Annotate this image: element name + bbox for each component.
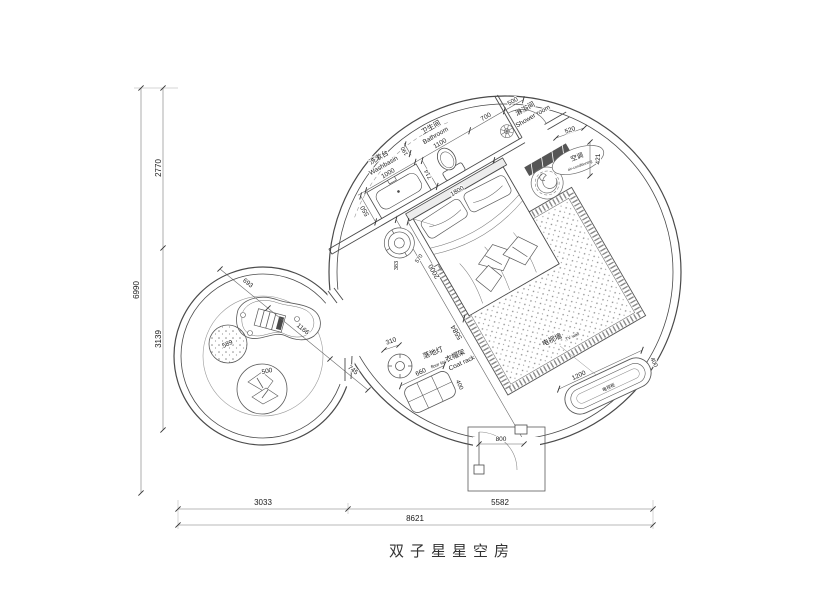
floor-lamp-label-zh: 落地灯: [421, 344, 444, 360]
lounge-stool: 589: [209, 325, 247, 363]
floor-plan-canvas: 5584 洗漱台 Washbasin 1000 卫生间 Bathroom 1: [0, 0, 837, 592]
svg-text:520: 520: [564, 125, 577, 135]
svg-text:714: 714: [423, 168, 434, 180]
door-hinge-block: [474, 465, 484, 474]
rotated-interior: 5584 洗漱台 Washbasin 1000 卫生间 Bathroom 1: [299, 61, 700, 482]
floor-lamp: [388, 354, 412, 378]
dim-left-total: 6990: [132, 281, 141, 299]
bottom-dimensions: 3033 5582 8621: [175, 498, 655, 529]
dim-bottom-left: 3033: [254, 498, 272, 507]
dim-left-upper: 2770: [154, 159, 163, 177]
shower-drain: [498, 122, 516, 140]
dim-bottom-right: 5582: [491, 498, 509, 507]
door-stop-block: [515, 425, 527, 434]
dim-570: 570: [414, 253, 424, 264]
left-dimensions: 6990 2770 3139: [132, 85, 178, 495]
dim-bottom-total: 8621: [406, 514, 424, 523]
lounge-room-walls: [174, 267, 352, 445]
entry-vestibule: 800: [468, 425, 545, 491]
dim-383: 383: [394, 261, 400, 270]
svg-text:421: 421: [595, 153, 602, 164]
svg-text:310: 310: [385, 336, 398, 346]
dim-lamp: 310: [381, 336, 401, 352]
floor-plan-drawing: 5584 洗漱台 Washbasin 1000 卫生间 Bathroom 1: [0, 0, 837, 592]
dim-entry-width: 800: [496, 436, 507, 443]
svg-text:5584: 5584: [450, 323, 464, 340]
dim-niche: 190: [400, 145, 410, 156]
dim-left-lower: 3139: [154, 330, 163, 348]
dim-520: 520: [553, 125, 586, 140]
coat-rack: 660 衣帽架 Coat rack 400: [394, 344, 486, 416]
lounge-chair: 500: [237, 364, 287, 414]
bedside-table: [379, 222, 420, 263]
drawing-title: 双子星星空房: [389, 543, 515, 560]
